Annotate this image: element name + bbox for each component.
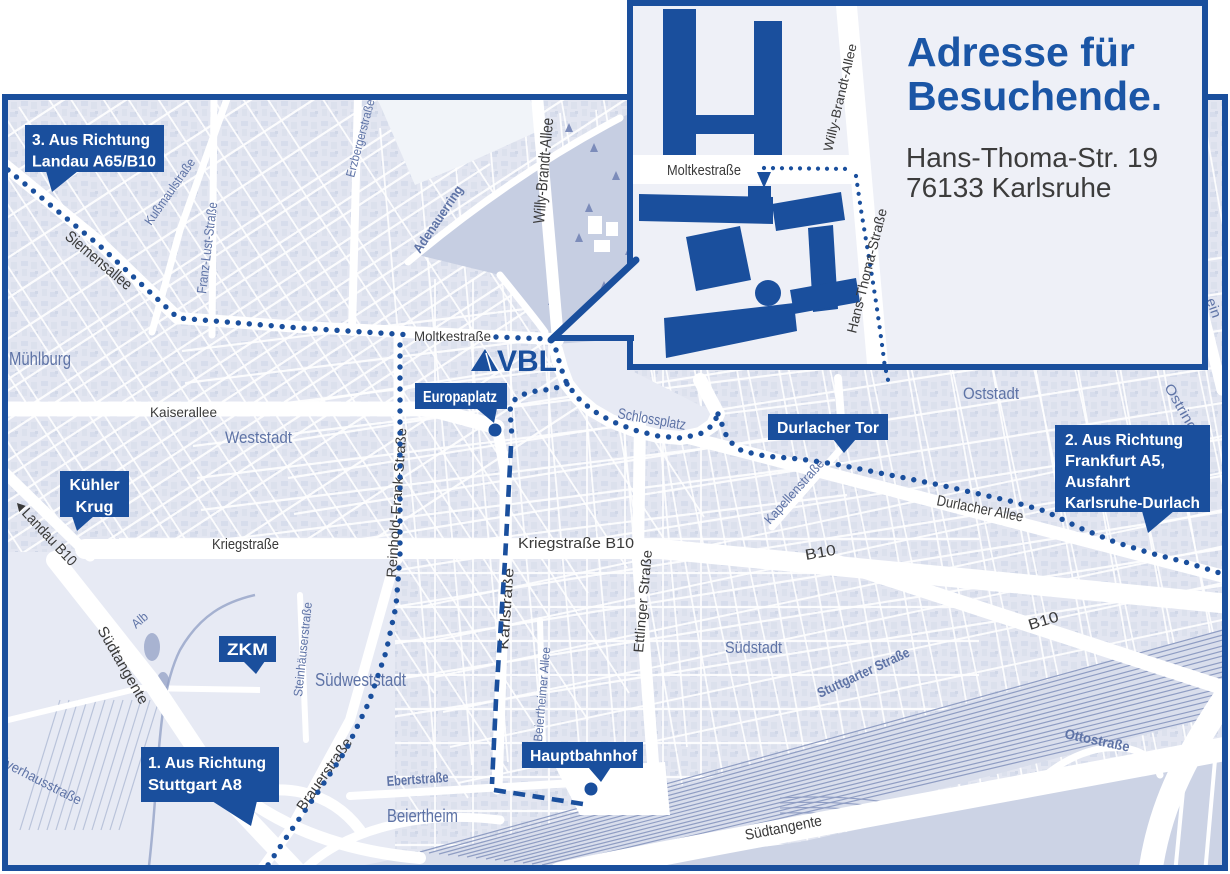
svg-text:Kriegstraße: Kriegstraße bbox=[212, 536, 279, 553]
svg-text:Oststadt: Oststadt bbox=[963, 384, 1019, 403]
svg-text:Kriegstraße B10: Kriegstraße B10 bbox=[518, 535, 634, 552]
svg-text:Mühlburg: Mühlburg bbox=[9, 349, 71, 369]
svg-text:Weststadt: Weststadt bbox=[225, 428, 292, 447]
svg-text:Hauptbahnhof: Hauptbahnhof bbox=[530, 748, 638, 765]
svg-text:VBL: VBL bbox=[497, 345, 557, 378]
svg-text:Besuchende.: Besuchende. bbox=[907, 73, 1162, 119]
svg-text:Frankfurt A5,: Frankfurt A5, bbox=[1065, 453, 1165, 470]
svg-text:3. Aus Richtung: 3. Aus Richtung bbox=[32, 132, 150, 149]
svg-text:Kühler: Kühler bbox=[70, 477, 120, 494]
svg-text:Moltkestraße: Moltkestraße bbox=[667, 162, 741, 179]
svg-text:Hans-Thoma-Str. 19: Hans-Thoma-Str. 19 bbox=[906, 142, 1158, 173]
svg-text:Südstadt: Südstadt bbox=[725, 638, 782, 657]
svg-text:Durlacher Tor: Durlacher Tor bbox=[777, 420, 879, 437]
svg-text:Landau A65/B10: Landau A65/B10 bbox=[32, 154, 156, 171]
svg-text:Südweststadt: Südweststadt bbox=[315, 670, 406, 690]
svg-text:Kaiserallee: Kaiserallee bbox=[150, 404, 217, 420]
svg-text:Moltkestraße: Moltkestraße bbox=[414, 328, 491, 344]
svg-text:Karlsruhe-Durlach: Karlsruhe-Durlach bbox=[1065, 495, 1200, 512]
svg-text:1. Aus Richtung: 1. Aus Richtung bbox=[148, 755, 266, 772]
svg-text:Beiertheim: Beiertheim bbox=[387, 806, 458, 826]
svg-text:Stuttgart A8: Stuttgart A8 bbox=[148, 777, 242, 794]
svg-text:Adresse für: Adresse für bbox=[907, 29, 1135, 75]
svg-text:Krug: Krug bbox=[76, 499, 114, 516]
svg-text:76133 Karlsruhe: 76133 Karlsruhe bbox=[906, 172, 1111, 203]
svg-text:2. Aus Richtung: 2. Aus Richtung bbox=[1065, 432, 1183, 449]
svg-text:Ausfahrt: Ausfahrt bbox=[1065, 474, 1131, 491]
svg-text:ZKM: ZKM bbox=[227, 640, 268, 659]
svg-text:Europaplatz: Europaplatz bbox=[423, 389, 497, 406]
